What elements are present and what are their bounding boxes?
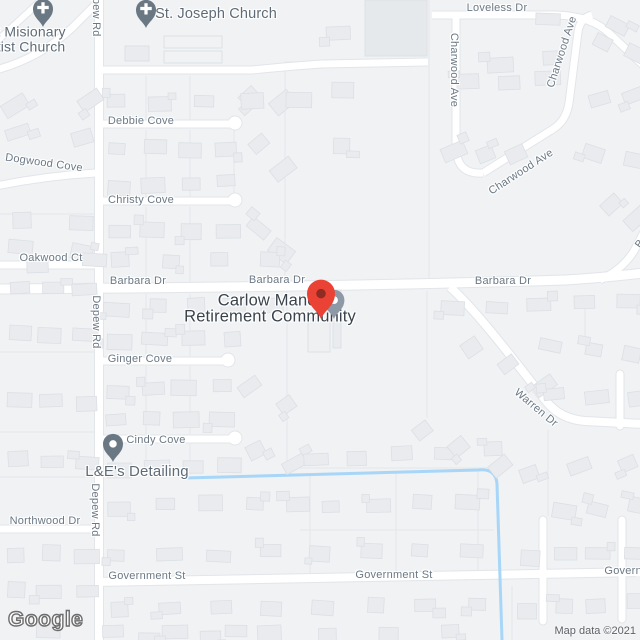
street-label-oakwood-ct: Oakwood Ct xyxy=(19,252,82,264)
poi-label-baptist-church[interactable]: t Misionarytist Church xyxy=(0,25,66,54)
street-label-cindy-cove: Cindy Cove xyxy=(126,434,185,446)
map-canvas[interactable]: Loveless DrCharwood AveCharwood AveCharw… xyxy=(0,0,640,640)
street-label-depew-rd-3: Depew Rd xyxy=(89,483,101,536)
street-label-barbara-dr-3: Barbara Dr xyxy=(475,275,531,287)
street-label-government-st-3: Government St xyxy=(604,565,640,577)
street-label-ginger-cove: Ginger Cove xyxy=(108,353,173,365)
street-label-depew-rd-1: Depew Rd xyxy=(90,0,102,37)
poi-label-st-joseph-church[interactable]: St. Joseph Church xyxy=(155,7,277,22)
pin-dot-icon xyxy=(109,440,117,448)
google-logo[interactable]: Google xyxy=(8,608,83,632)
map-attribution: Map data ©2021 xyxy=(555,625,637,637)
street-label-christy-cove: Christy Cove xyxy=(108,194,174,206)
street-label-depew-rd-2: Depew Rd xyxy=(90,295,102,348)
street-label-debbie-cove: Debbie Cove xyxy=(108,115,174,127)
red-pin-inner-dot xyxy=(316,289,325,298)
street-label-charwood-ave-1: Charwood Ave xyxy=(448,33,460,107)
street-label-northwood-dr: Northwood Dr xyxy=(10,515,81,527)
poi-label-le-detailing[interactable]: L&E's Detailing xyxy=(85,465,189,480)
street-label-loveless-dr: Loveless Dr xyxy=(467,2,528,14)
street-label-barbara-dr-1: Barbara Dr xyxy=(110,275,166,287)
street-label-government-st-2: Government St xyxy=(355,569,432,581)
street-label-barbara-dr-2: Barbara Dr xyxy=(249,274,305,286)
street-label-government-st-1: Government St xyxy=(108,570,185,582)
